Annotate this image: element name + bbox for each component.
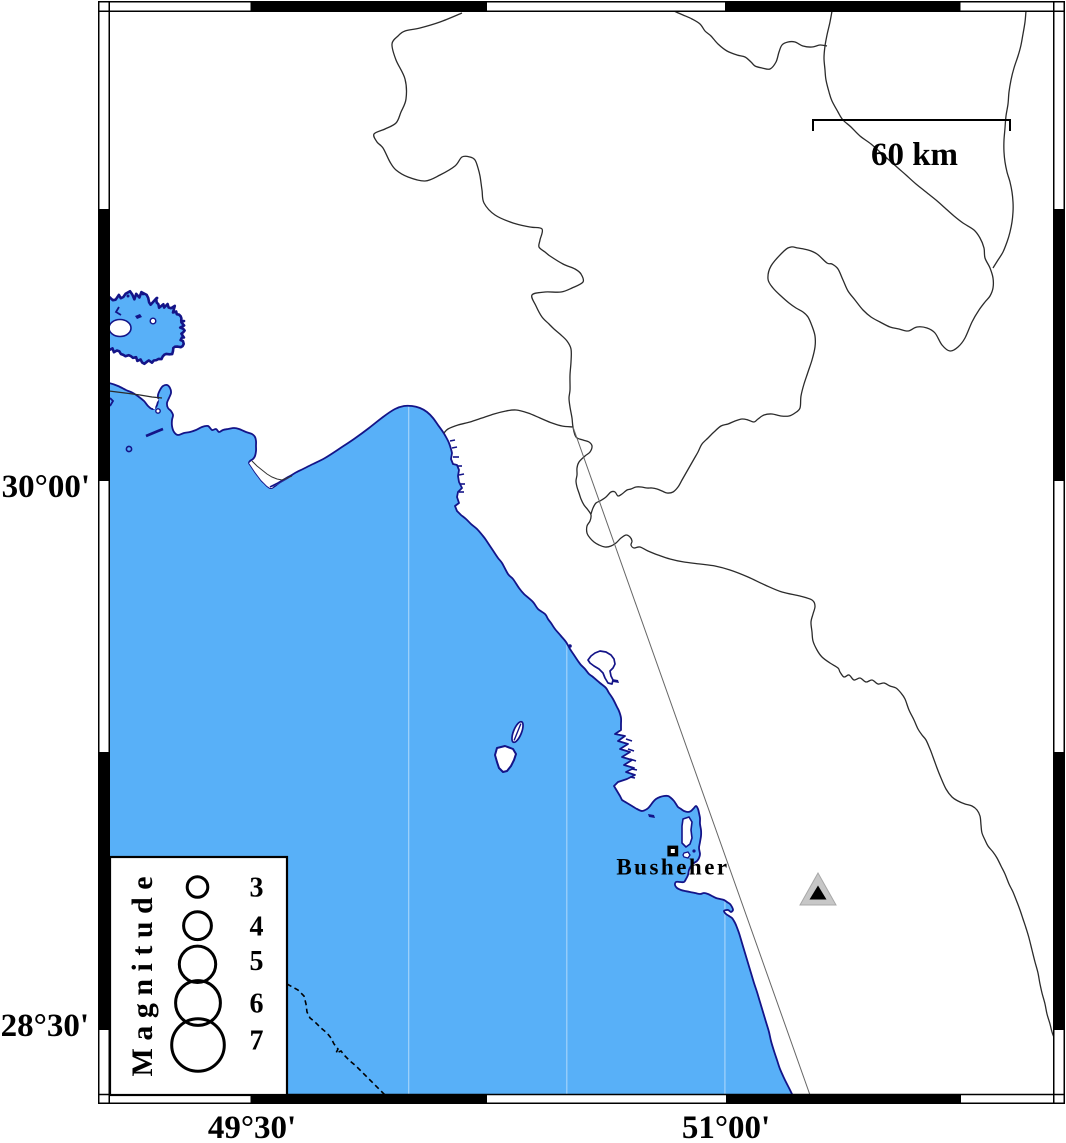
- svg-text:49°30': 49°30': [208, 1110, 296, 1143]
- svg-text:30°00': 30°00': [2, 469, 90, 505]
- svg-text:60 km: 60 km: [871, 137, 958, 173]
- svg-text:6: 6: [250, 989, 264, 1020]
- svg-text:M a g n i t u d e: M a g n i t u d e: [126, 876, 159, 1076]
- svg-text:28°30': 28°30': [1, 1008, 89, 1044]
- svg-text:7: 7: [250, 1026, 264, 1057]
- svg-text:5: 5: [250, 946, 264, 977]
- svg-text:Busheher: Busheher: [616, 855, 729, 880]
- svg-text:3: 3: [250, 873, 264, 904]
- svg-text:51°00': 51°00': [682, 1110, 770, 1143]
- svg-text:4: 4: [250, 912, 264, 943]
